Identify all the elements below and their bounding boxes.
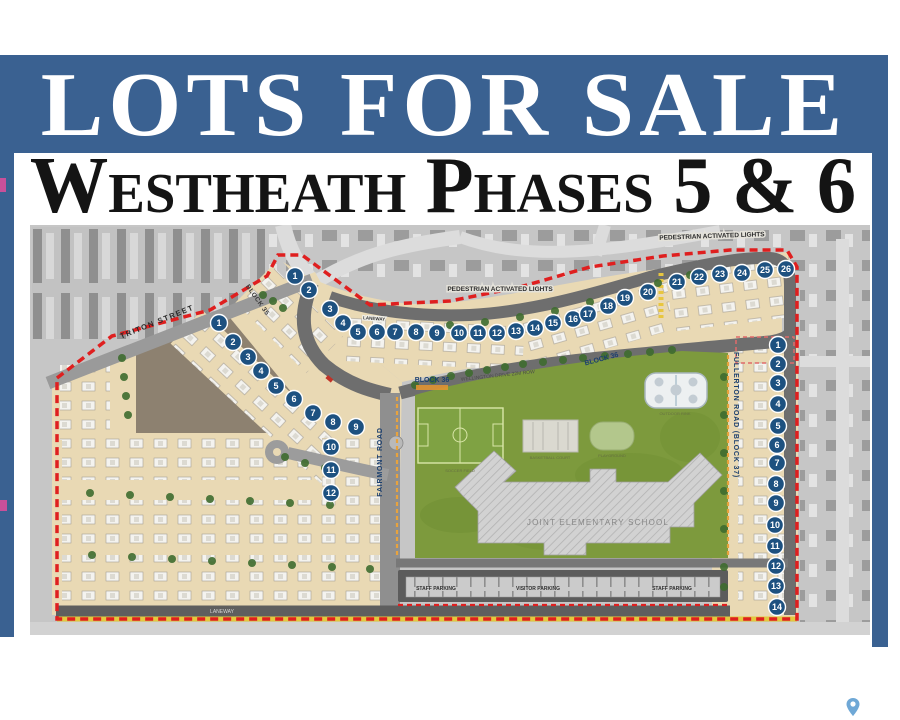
lot-marker-block-35-lots-8: 8 xyxy=(325,414,342,431)
tree-icon xyxy=(720,525,728,533)
tree-icon xyxy=(124,411,132,419)
hockey-rink xyxy=(645,373,707,408)
lot-marker-block-36-lots-6: 6 xyxy=(369,324,386,341)
tree-icon xyxy=(516,313,524,321)
tree-icon xyxy=(269,297,277,305)
rink-label: OUTDOOR RINK xyxy=(659,411,690,416)
tree-icon xyxy=(120,373,128,381)
lot-marker-block-37-lots-1: 1 xyxy=(770,337,787,354)
svg-text:26: 26 xyxy=(781,264,791,274)
lot-marker-block-36-lots-25: 25 xyxy=(757,262,774,279)
basketball-court-label: BASKETBALL COURT xyxy=(530,455,571,460)
lot-marker-block-36-lots-2: 2 xyxy=(301,282,318,299)
page-title: LOTS FOR SALE xyxy=(0,55,900,153)
tree-icon xyxy=(279,304,287,312)
svg-text:13: 13 xyxy=(771,581,781,591)
lot-marker-block-35-lots-12: 12 xyxy=(323,485,340,502)
tree-icon xyxy=(126,491,134,499)
staff-parking-label-west: STAFF PARKING xyxy=(416,586,456,592)
lot-marker-block-35-lots-3: 3 xyxy=(240,349,257,366)
block-36-label-west: BLOCK 36 xyxy=(415,377,450,384)
tree-icon xyxy=(720,583,728,591)
lot-marker-block-36-lots-8: 8 xyxy=(408,324,425,341)
visitor-parking-label: VISITOR PARKING xyxy=(516,586,560,592)
lot-marker-block-37-lots-6: 6 xyxy=(769,437,786,454)
svg-text:9: 9 xyxy=(434,328,439,338)
school-label: JOINT ELEMENTARY SCHOOL xyxy=(527,518,669,527)
lot-marker-block-36-lots-21: 21 xyxy=(669,274,686,291)
svg-text:11: 11 xyxy=(326,465,336,475)
tree-icon xyxy=(501,363,509,371)
lot-marker-block-36-lots-20: 20 xyxy=(640,284,657,301)
lot-marker-block-36-lots-3: 3 xyxy=(322,301,339,318)
lot-marker-block-36-lots-24: 24 xyxy=(734,265,751,282)
svg-text:21: 21 xyxy=(672,277,682,287)
svg-text:18: 18 xyxy=(603,301,613,311)
lot-marker-block-35-lots-10: 10 xyxy=(323,439,340,456)
lot-marker-block-35-lots-7: 7 xyxy=(305,405,322,422)
svg-text:1: 1 xyxy=(216,318,221,328)
tree-icon xyxy=(668,346,676,354)
svg-text:5: 5 xyxy=(775,421,780,431)
tree-icon xyxy=(654,279,662,287)
lot-marker-block-35-lots-6: 6 xyxy=(286,391,303,408)
svg-text:10: 10 xyxy=(326,442,336,452)
lot-marker-block-37-lots-10: 10 xyxy=(767,517,784,534)
svg-text:9: 9 xyxy=(353,422,358,432)
street-label-fairmont: FAIRMONT ROAD xyxy=(377,427,384,497)
lot-marker-block-36-lots-4: 4 xyxy=(335,315,352,332)
tree-icon xyxy=(168,555,176,563)
tree-icon xyxy=(720,563,728,571)
staff-parking-label-east: STAFF PARKING xyxy=(652,586,692,592)
lot-marker-block-36-lots-19: 19 xyxy=(617,290,634,307)
svg-text:4: 4 xyxy=(775,399,780,409)
svg-text:11: 11 xyxy=(473,328,483,338)
svg-text:4: 4 xyxy=(340,318,345,328)
tree-icon xyxy=(118,354,126,362)
tree-icon xyxy=(328,563,336,571)
street-label-fullerton: FULLERTON ROAD (BLOCK 37) xyxy=(732,352,739,478)
svg-text:12: 12 xyxy=(492,328,502,338)
svg-text:1: 1 xyxy=(292,271,297,281)
svg-text:9: 9 xyxy=(773,498,778,508)
svg-text:1: 1 xyxy=(775,340,780,350)
svg-text:7: 7 xyxy=(774,458,779,468)
svg-text:16: 16 xyxy=(568,314,578,324)
svg-text:3: 3 xyxy=(775,378,780,388)
lot-marker-block-37-lots-4: 4 xyxy=(770,396,787,413)
lot-marker-block-35-lots-2: 2 xyxy=(225,334,242,351)
flyer-page: LOTS FOR SALE Westheath Phases 5 & 6 xyxy=(0,0,900,720)
tree-icon xyxy=(720,411,728,419)
tree-icon xyxy=(559,356,567,364)
svg-text:5: 5 xyxy=(355,327,360,337)
lot-marker-block-37-lots-13: 13 xyxy=(768,578,785,595)
laneway-bottom-label: LANEWAY xyxy=(210,609,235,615)
tree-icon xyxy=(720,487,728,495)
svg-text:10: 10 xyxy=(454,328,464,338)
svg-text:12: 12 xyxy=(771,561,781,571)
svg-text:6: 6 xyxy=(374,327,379,337)
svg-text:6: 6 xyxy=(774,440,779,450)
lot-marker-block-36-lots-11: 11 xyxy=(470,325,487,342)
lot-marker-block-37-lots-2: 2 xyxy=(770,356,787,373)
tree-icon xyxy=(646,348,654,356)
tree-icon xyxy=(288,561,296,569)
lot-marker-block-37-lots-12: 12 xyxy=(768,558,785,575)
tree-icon xyxy=(88,551,96,559)
lot-marker-block-37-lots-9: 9 xyxy=(768,495,785,512)
lot-marker-block-35-lots-1: 1 xyxy=(211,315,228,332)
lot-marker-block-37-lots-8: 8 xyxy=(768,476,785,493)
lot-marker-block-36-lots-12: 12 xyxy=(489,325,506,342)
tree-icon xyxy=(624,350,632,358)
svg-text:4: 4 xyxy=(258,366,263,376)
lot-marker-block-36-lots-23: 23 xyxy=(712,266,729,283)
lot-marker-block-36-lots-10: 10 xyxy=(451,325,468,342)
tree-icon xyxy=(301,459,309,467)
lot-marker-block-37-lots-14: 14 xyxy=(769,599,786,616)
svg-text:17: 17 xyxy=(583,309,593,319)
frame-mark xyxy=(0,500,7,511)
banner: LOTS FOR SALE xyxy=(0,55,888,153)
tree-icon xyxy=(122,392,130,400)
lot-marker-block-35-lots-9: 9 xyxy=(348,419,365,436)
svg-text:14: 14 xyxy=(772,602,782,612)
svg-text:24: 24 xyxy=(737,268,747,278)
lot-marker-block-35-lots-4: 4 xyxy=(253,363,270,380)
svg-text:12: 12 xyxy=(326,488,336,498)
lot-marker-block-36-lots-9: 9 xyxy=(429,325,446,342)
lot-marker-block-36-lots-1: 1 xyxy=(287,268,304,285)
svg-text:8: 8 xyxy=(413,327,418,337)
lot-marker-block-36-lots-14: 14 xyxy=(527,320,544,337)
frame-bar-right xyxy=(872,153,888,647)
svg-text:23: 23 xyxy=(715,269,725,279)
svg-text:22: 22 xyxy=(694,272,704,282)
lot-marker-block-36-lots-18: 18 xyxy=(600,298,617,315)
tree-icon xyxy=(720,449,728,457)
site-plan-svg: TRITON STREETBLOCK 35LANEWAYPEDESTRIAN A… xyxy=(30,225,870,635)
lot-marker-block-35-lots-5: 5 xyxy=(268,378,285,395)
svg-text:3: 3 xyxy=(327,304,332,314)
tree-icon xyxy=(246,497,254,505)
frame-mark xyxy=(0,178,6,192)
svg-text:19: 19 xyxy=(620,293,630,303)
svg-text:3: 3 xyxy=(245,352,250,362)
tree-icon xyxy=(539,358,547,366)
svg-text:6: 6 xyxy=(291,394,296,404)
lot-marker-block-36-lots-17: 17 xyxy=(580,306,597,323)
map-pin-icon xyxy=(845,697,861,717)
svg-text:8: 8 xyxy=(773,479,778,489)
svg-text:7: 7 xyxy=(392,327,397,337)
lot-marker-block-36-lots-13: 13 xyxy=(508,323,525,340)
tree-icon xyxy=(483,366,491,374)
pedestrian-lights-label-west: PEDESTRIAN ACTIVATED LIGHTS xyxy=(447,286,553,293)
basketball-court xyxy=(523,420,578,452)
lot-marker-block-35-lots-11: 11 xyxy=(323,462,340,479)
tree-icon xyxy=(208,557,216,565)
lot-marker-block-36-lots-15: 15 xyxy=(545,315,562,332)
lot-marker-block-37-lots-11: 11 xyxy=(767,538,784,555)
tree-icon xyxy=(86,489,94,497)
tree-icon xyxy=(166,493,174,501)
tree-icon xyxy=(551,307,559,315)
lot-marker-block-36-lots-22: 22 xyxy=(691,269,708,286)
svg-text:20: 20 xyxy=(643,287,653,297)
frame-bar-left xyxy=(0,153,14,637)
tree-icon xyxy=(248,559,256,567)
soccer-field-label: SOCCER FIELD xyxy=(445,468,475,473)
tree-icon xyxy=(206,495,214,503)
svg-text:2: 2 xyxy=(306,285,311,295)
svg-text:10: 10 xyxy=(770,520,780,530)
lot-marker-block-36-lots-7: 7 xyxy=(387,324,404,341)
lot-marker-block-36-lots-26: 26 xyxy=(778,261,795,278)
lot-marker-block-37-lots-5: 5 xyxy=(770,418,787,435)
tree-icon xyxy=(326,501,334,509)
playground xyxy=(590,422,634,450)
subtitle-box: Westheath Phases 5 & 6 xyxy=(14,153,872,222)
svg-text:2: 2 xyxy=(230,337,235,347)
lot-marker-block-36-lots-5: 5 xyxy=(350,324,367,341)
tree-icon xyxy=(281,453,289,461)
tree-icon xyxy=(366,565,374,573)
svg-text:7: 7 xyxy=(310,408,315,418)
svg-text:11: 11 xyxy=(770,541,780,551)
svg-text:14: 14 xyxy=(530,323,540,333)
playground-label: PLAYGROUND xyxy=(598,453,626,458)
tree-icon xyxy=(586,298,594,306)
tree-icon xyxy=(128,553,136,561)
svg-text:5: 5 xyxy=(273,381,278,391)
svg-text:13: 13 xyxy=(511,326,521,336)
site-plan-map: TRITON STREETBLOCK 35LANEWAYPEDESTRIAN A… xyxy=(30,225,870,635)
svg-text:15: 15 xyxy=(548,318,558,328)
lot-marker-block-37-lots-3: 3 xyxy=(770,375,787,392)
svg-text:2: 2 xyxy=(775,359,780,369)
subtitle-text: Westheath Phases 5 & 6 xyxy=(23,153,864,219)
tree-icon xyxy=(286,499,294,507)
svg-text:25: 25 xyxy=(760,265,770,275)
tree-icon xyxy=(720,373,728,381)
block-36-highlight-chip xyxy=(416,385,448,390)
tree-icon xyxy=(519,360,527,368)
lot-marker-block-37-lots-7: 7 xyxy=(769,455,786,472)
tree-icon xyxy=(481,318,489,326)
svg-text:8: 8 xyxy=(330,417,335,427)
